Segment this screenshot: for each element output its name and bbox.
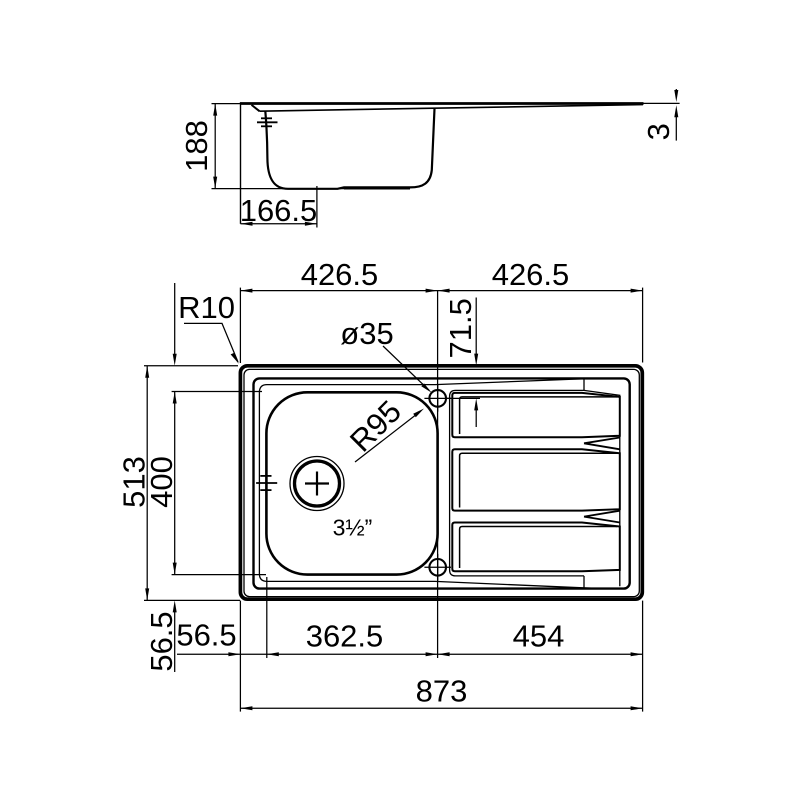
svg-text:56.5: 56.5	[176, 618, 236, 653]
svg-text:3½”: 3½”	[333, 515, 373, 541]
svg-text:R10: R10	[178, 290, 235, 325]
svg-text:56.5: 56.5	[144, 611, 179, 671]
svg-text:426.5: 426.5	[301, 257, 379, 292]
svg-text:ø35: ø35	[340, 316, 393, 351]
svg-text:188: 188	[179, 120, 214, 172]
svg-text:166.5: 166.5	[240, 193, 318, 228]
svg-text:426.5: 426.5	[492, 257, 570, 292]
svg-text:71.5: 71.5	[443, 298, 478, 358]
svg-text:454: 454	[513, 619, 565, 654]
svg-text:3: 3	[641, 123, 676, 140]
svg-text:362.5: 362.5	[306, 619, 384, 654]
svg-text:873: 873	[416, 673, 468, 708]
svg-text:400: 400	[144, 456, 179, 508]
